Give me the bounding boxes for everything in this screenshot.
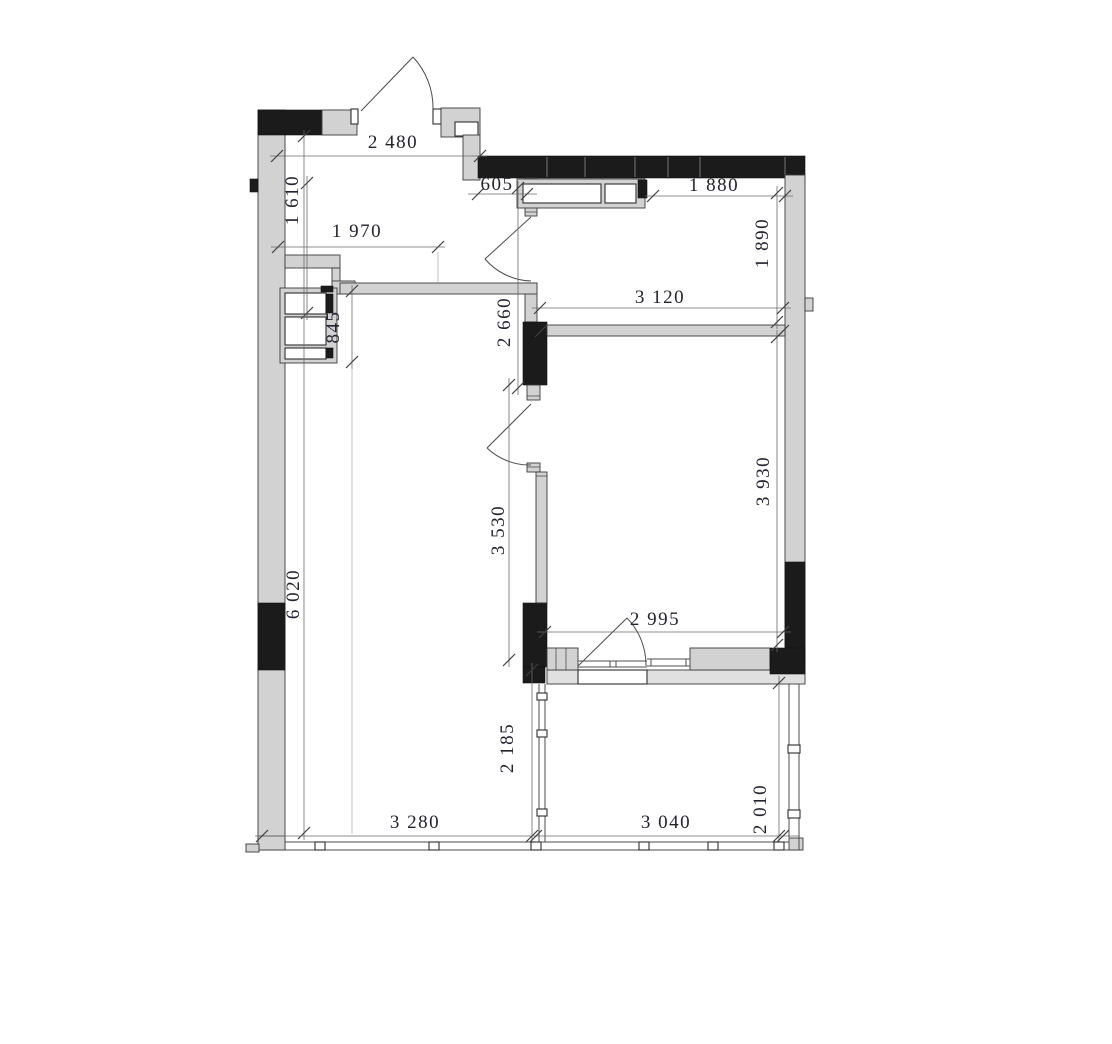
wall-balcony-black-corner (770, 648, 805, 674)
entrance-pier-notch (455, 122, 478, 136)
dim-balcony-right-depth: 2 010 (750, 676, 785, 843)
dim-label: 1 610 (282, 175, 303, 225)
dim-label: 605 (481, 174, 514, 195)
dim-label: 845 (323, 311, 344, 344)
bathtub-basin (523, 184, 601, 203)
window-outer-stub (246, 844, 259, 852)
dim-bath-depth: 1 890 (752, 186, 783, 329)
bath-wall-pier-black (638, 180, 647, 198)
dim-label: 2 480 (368, 132, 418, 153)
dim-label: 1 880 (689, 175, 739, 196)
dim-label: 3 120 (635, 287, 685, 308)
dim-label: 1 890 (752, 218, 773, 268)
wall-top-band-black (478, 156, 805, 178)
dim-bedroom-depth: 3 930 (753, 330, 783, 652)
floor-plan-drawing: 2 480 1 970 1 610 6 020 845 (0, 0, 1112, 1044)
dim-duct-height: 845 (323, 285, 358, 834)
shaft-duct-1 (285, 293, 326, 314)
dimensions: 2 480 1 970 1 610 6 020 845 (255, 130, 800, 843)
balcony-door-threshold (578, 670, 647, 684)
balcony-fixed-window (647, 659, 690, 666)
dim-label: 6 020 (283, 569, 304, 619)
shaft-black-1 (326, 294, 333, 313)
wall-bedroom-left (536, 472, 547, 603)
ventilation-shaft (280, 255, 355, 363)
wall-balcony-gray-block (690, 648, 770, 670)
window-mullions-right (788, 745, 800, 818)
wall-left-outer-tick (250, 179, 258, 192)
dim-bath-width: 1 880 (645, 175, 793, 202)
dim-living-width: 3 280 3 040 (255, 812, 800, 842)
door-jamb-left (351, 109, 358, 124)
bathtub-fixture (517, 179, 647, 208)
dim-label: 2 660 (494, 297, 515, 347)
wall-bath-south (547, 325, 785, 336)
dim-living-depth: 6 020 (283, 130, 310, 840)
dim-label: 3 280 (390, 812, 440, 833)
wall-cap-2 (527, 463, 540, 472)
dim-living-mid-depth: 3 530 (488, 378, 515, 667)
entrance-pier-leg (463, 135, 480, 180)
dim-label: 1 970 (332, 221, 382, 242)
exterior-walls (250, 108, 813, 850)
shaft-black-2 (326, 348, 333, 358)
window-mullions-bottom (315, 842, 784, 850)
dim-label: 2 995 (630, 609, 680, 630)
wall-pier-black-lower (523, 603, 547, 667)
wall-top-black (258, 110, 322, 135)
shaft-duct-2 (285, 317, 326, 345)
dim-balcony-left-depth: 2 185 (497, 663, 538, 843)
wall-left-black-segment (258, 603, 285, 670)
shaft-top-stub (285, 255, 340, 268)
shaft-black-tick-top (321, 286, 333, 292)
entrance-door (361, 57, 433, 111)
wall-right-outer-tick (805, 298, 813, 311)
window-corner-right (789, 838, 803, 850)
wall-left (258, 110, 285, 850)
windows (246, 684, 803, 852)
dim-bedroom-width: 2 995 (537, 609, 791, 638)
dim-label: 3 530 (488, 505, 509, 555)
dim-kitchen-zone-width: 1 970 (271, 221, 445, 284)
dim-label: 2 185 (497, 723, 518, 773)
door-jamb-right (433, 109, 441, 124)
dim-label: 3 930 (753, 456, 774, 506)
kitchen-counter-partition (340, 283, 537, 294)
dim-label-balcony: 3 040 (641, 812, 691, 833)
window-corner-left (258, 836, 285, 850)
balcony-door-sill (578, 661, 647, 667)
wall-pier-black-upper (523, 322, 547, 385)
shaft-duct-3 (285, 348, 326, 359)
wall-cap-1 (527, 385, 540, 400)
sink-basin (605, 184, 636, 203)
wall-balcony-pier-left (547, 648, 578, 670)
bathroom-door (485, 217, 531, 281)
dim-label: 2 010 (750, 784, 771, 834)
floor-plan-canvas: 2 480 1 970 1 610 6 020 845 (0, 0, 1112, 1044)
